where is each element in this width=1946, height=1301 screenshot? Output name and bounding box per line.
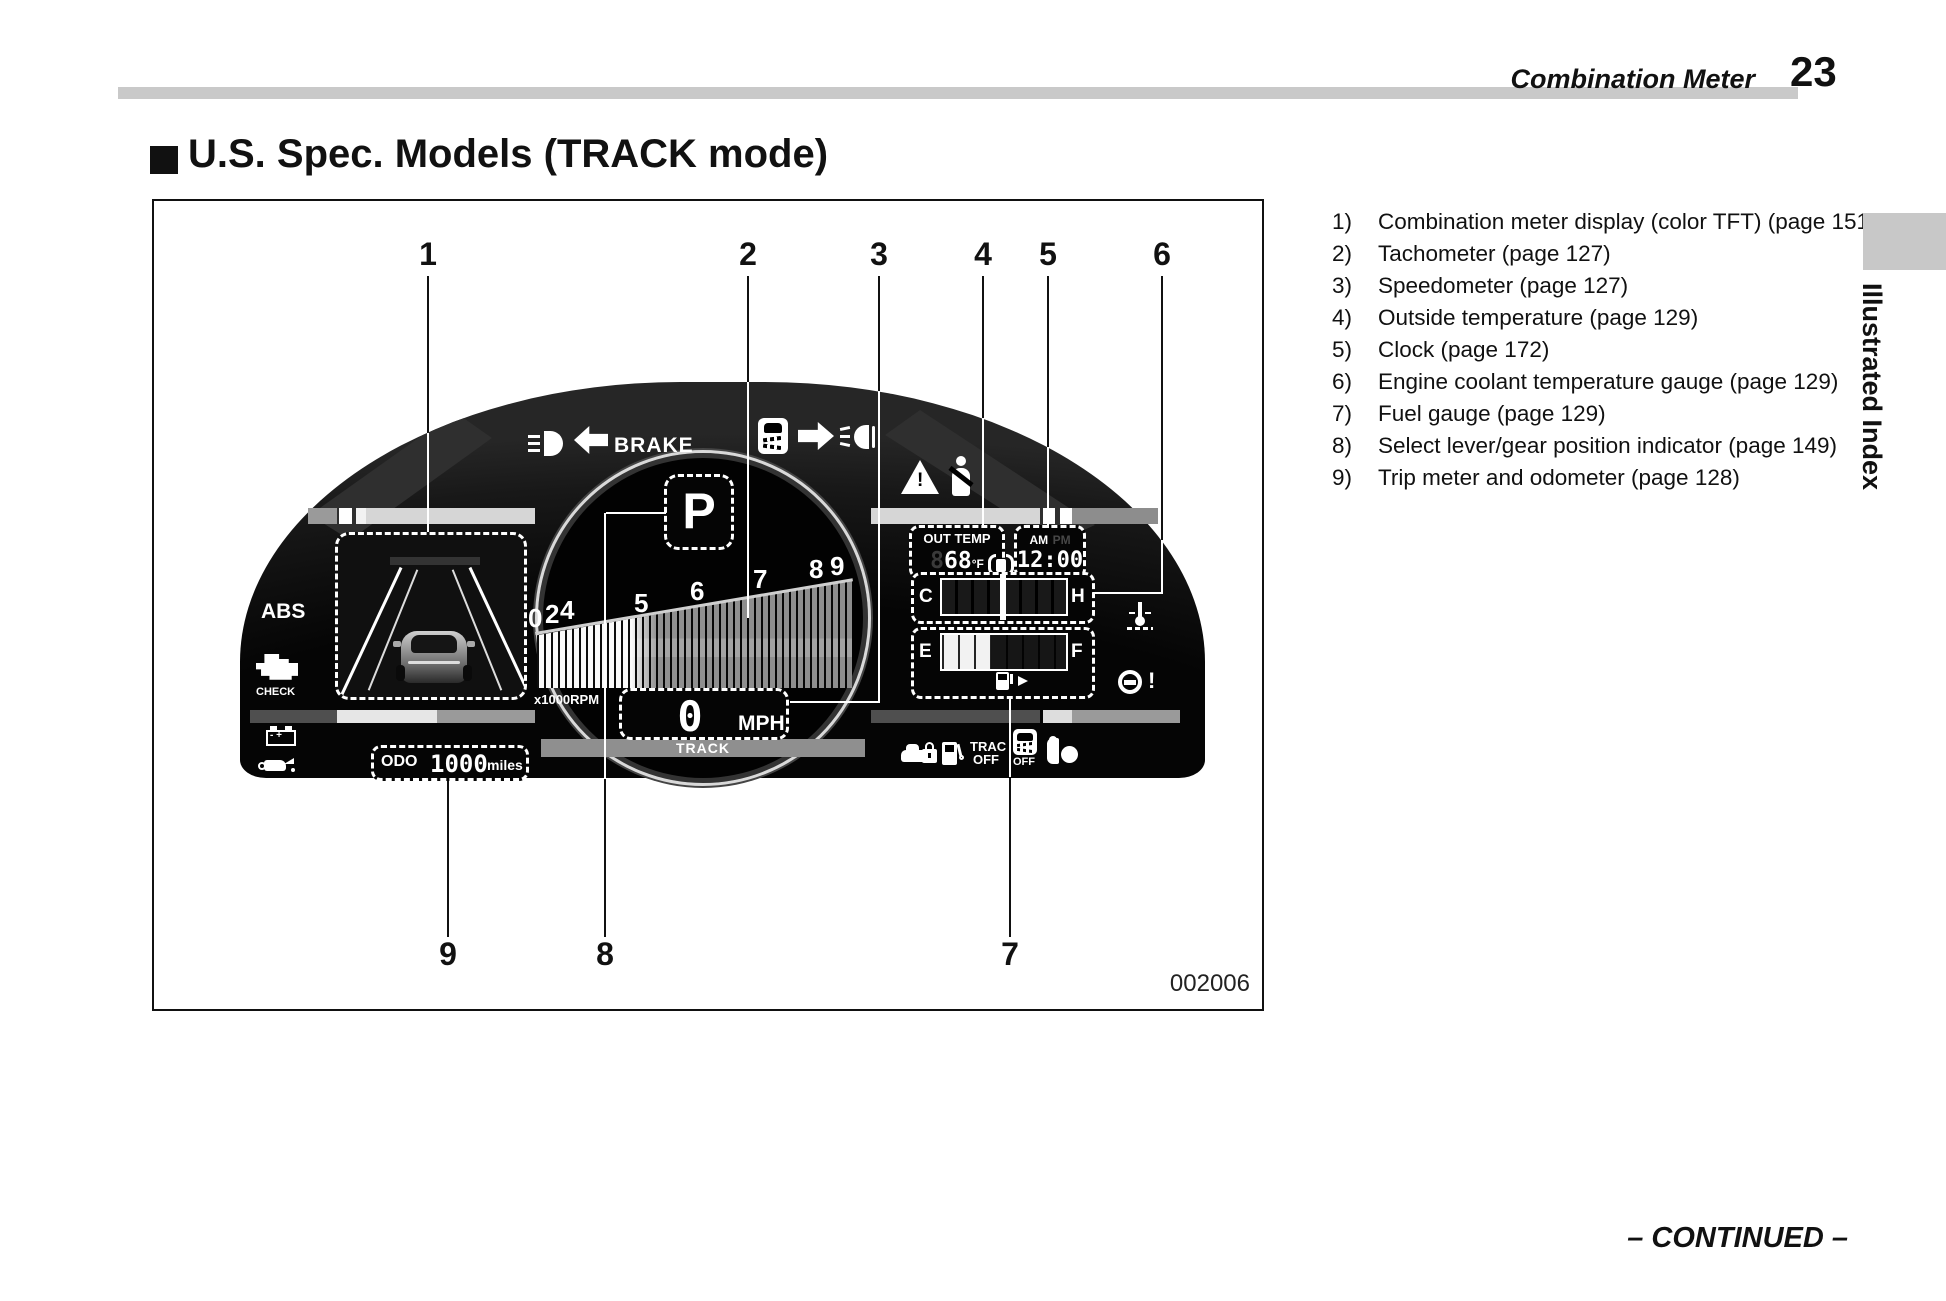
legend-item-text: Fuel gauge (page 129) — [1378, 398, 1880, 430]
battery-icon: - + — [266, 726, 296, 746]
callout-3: 3 — [862, 236, 896, 273]
band-segment — [339, 508, 352, 524]
out-temp-ghost-digit: 8 — [930, 548, 944, 574]
legend-item: 7) Fuel gauge (page 129) — [1332, 398, 1880, 430]
low-fuel-icon — [942, 740, 966, 766]
callout-line-8-inner — [604, 513, 606, 778]
band-segment — [437, 710, 535, 723]
legend-item: 6) Engine coolant temperature gauge (pag… — [1332, 366, 1880, 398]
section-title: U.S. Spec. Models (TRACK mode) — [188, 132, 828, 177]
band-segment — [308, 508, 337, 524]
legend-item-number: 9) — [1332, 462, 1378, 494]
callout-2: 2 — [731, 236, 765, 273]
callout-line-8 — [604, 779, 606, 937]
legend-item-number: 6) — [1332, 366, 1378, 398]
legend-item-text: Combination meter display (color TFT) (p… — [1378, 206, 1880, 238]
band-segment — [337, 710, 437, 723]
callout-9: 9 — [431, 936, 465, 973]
callout-line-4 — [982, 276, 984, 419]
callout-line-5-inner — [1047, 447, 1049, 528]
callout-4: 4 — [966, 236, 1000, 273]
legend-item: 9) Trip meter and odometer (page 128) — [1332, 462, 1880, 494]
odometer-value: 1000 — [430, 750, 488, 778]
callout-6: 6 — [1145, 236, 1179, 273]
legend-item-text: Outside temperature (page 129) — [1378, 302, 1880, 334]
section-title-square — [150, 146, 178, 174]
band-segment — [366, 508, 535, 524]
callout-line-1 — [427, 276, 429, 434]
legend-item-text: Speedometer (page 127) — [1378, 270, 1880, 302]
callout-line-7-inner — [1009, 698, 1011, 777]
callout-line-5 — [1047, 276, 1049, 448]
coolant-high-label: H — [1071, 586, 1085, 608]
callout-line-8-elbow — [606, 512, 666, 514]
coolant-gauge-needle — [1000, 574, 1006, 620]
legend-item-number: 7) — [1332, 398, 1378, 430]
legend-item-text: Trip meter and odometer (page 128) — [1378, 462, 1880, 494]
trac-off-label-line2: OFF — [973, 752, 999, 767]
index-tab — [1863, 213, 1946, 270]
callout-line-6-elbow — [1093, 592, 1163, 594]
road-horizon — [390, 557, 480, 565]
index-tab-label: Illustrated Index — [1856, 283, 1887, 543]
tach-digit: 5 — [634, 588, 648, 619]
gear-position-value: P — [664, 482, 734, 540]
header-page-number: 23 — [1790, 48, 1837, 96]
band-segment — [356, 508, 366, 524]
callout-8: 8 — [588, 936, 622, 973]
legend-item-number: 4) — [1332, 302, 1378, 334]
tach-digit: 0 — [528, 603, 542, 634]
legend-list: 1) Combination meter display (color TFT)… — [1332, 206, 1880, 494]
fuel-pump-arrow-icon — [996, 672, 1032, 692]
band-segment — [1043, 508, 1055, 524]
callout-line-6-inner — [1161, 540, 1163, 594]
vsc-off-label: OFF — [1013, 756, 1035, 768]
tach-digit: 7 — [753, 564, 767, 595]
car-rear-glass — [411, 635, 457, 653]
callout-line-3-elbow — [790, 701, 880, 703]
band-segment — [1072, 508, 1158, 524]
abs-label: ABS — [261, 600, 305, 624]
callout-line-1-inner — [427, 433, 429, 532]
callout-line-6 — [1161, 276, 1163, 541]
out-temp-value: 68 — [944, 548, 972, 574]
high-beam-icon — [528, 430, 566, 458]
car-mirror-left — [393, 641, 401, 647]
callout-line-2 — [747, 276, 749, 383]
legend-item-number: 1) — [1332, 206, 1378, 238]
header-section-title: Combination Meter — [1400, 64, 1755, 95]
callout-5: 5 — [1031, 236, 1065, 273]
legend-item-text: Select lever/gear position indicator (pa… — [1378, 430, 1880, 462]
legend-item: 1) Combination meter display (color TFT)… — [1332, 206, 1880, 238]
legend-item: 8) Select lever/gear position indicator … — [1332, 430, 1880, 462]
clock-time: 12:00 — [1014, 548, 1086, 573]
speed-value: 0 — [655, 692, 725, 741]
legend-item: 3) Speedometer (page 127) — [1332, 270, 1880, 302]
band-segment — [1072, 710, 1180, 723]
callout-1: 1 — [411, 236, 445, 273]
callout-line-7 — [1009, 777, 1011, 937]
callout-line-2-inner — [747, 382, 749, 618]
band-segment — [250, 710, 337, 723]
odometer-label: ODO — [381, 753, 417, 771]
legend-item-number: 5) — [1332, 334, 1378, 366]
tach-digit: 4 — [560, 595, 574, 626]
legend-item-text: Clock (page 172) — [1378, 334, 1880, 366]
band-segment — [1043, 710, 1072, 723]
continued-label: – CONTINUED – — [1540, 1222, 1848, 1255]
legend-item-number: 8) — [1332, 430, 1378, 462]
out-temp-label: OUT TEMP — [909, 531, 1005, 546]
clock-am: AM — [1029, 533, 1048, 547]
legend-item: 2) Tachometer (page 127) — [1332, 238, 1880, 270]
brake-label: BRAKE — [614, 434, 694, 458]
car-wheel-right — [463, 665, 472, 681]
band-segment — [1060, 508, 1072, 524]
coolant-low-label: C — [919, 586, 933, 608]
callout-line-3-inner — [878, 391, 880, 703]
fuel-gauge-bar — [940, 633, 1068, 671]
legend-item-text: Engine coolant temperature gauge (page 1… — [1378, 366, 1880, 398]
clock-pm: PM — [1053, 533, 1071, 547]
car-mirror-right — [467, 641, 475, 647]
callout-line-4-inner — [982, 418, 984, 528]
band-segment — [871, 710, 1040, 723]
tach-digit: 8 — [809, 554, 823, 585]
airbag-warning-icon — [1045, 736, 1079, 768]
tach-digit: 6 — [690, 576, 704, 607]
fuel-empty-label: E — [919, 641, 932, 663]
legend-item-number: 2) — [1332, 238, 1378, 270]
legend-item-text: Tachometer (page 127) — [1378, 238, 1880, 270]
legend-item-number: 3) — [1332, 270, 1378, 302]
clock-meridiem-row: AM PM — [1014, 531, 1086, 549]
check-engine-label: CHECK — [256, 686, 295, 698]
oil-pressure-icon — [258, 752, 296, 774]
callout-line-3 — [878, 276, 880, 392]
car-wheel-left — [396, 665, 405, 681]
coolant-temp-warning-icon — [1127, 602, 1153, 632]
vsc-skid-icon — [758, 418, 788, 454]
legend-item: 5) Clock (page 172) — [1332, 334, 1880, 366]
callout-line-9 — [447, 781, 449, 937]
fog-light-icon — [840, 424, 880, 450]
fuel-full-label: F — [1071, 641, 1083, 663]
figure-code: 002006 — [1168, 970, 1250, 998]
track-mode-label: TRACK — [541, 740, 865, 756]
band-segment — [871, 508, 1040, 524]
tach-digit: 2 — [545, 599, 559, 630]
rpm-multiplier-label: x1000RPM — [534, 692, 599, 707]
callout-7: 7 — [993, 936, 1027, 973]
tach-digit: 9 — [830, 551, 844, 582]
speed-unit: MPH — [738, 712, 785, 736]
odometer-unit: miles — [487, 757, 523, 773]
car-trunk-line — [408, 661, 460, 664]
info-display-box — [335, 532, 527, 700]
warning-triangle-icon: ! — [901, 460, 939, 494]
vsc-off-icon: OFF — [1013, 729, 1039, 769]
steering-warning-icon: ! — [1118, 670, 1158, 696]
legend-item: 4) Outside temperature (page 129) — [1332, 302, 1880, 334]
manual-page: Combination Meter 23 U.S. Spec. Models (… — [0, 0, 1946, 1301]
out-temp-unit: °F — [972, 557, 984, 571]
seatbelt-icon — [945, 456, 977, 498]
security-car-lock-icon — [901, 740, 939, 766]
